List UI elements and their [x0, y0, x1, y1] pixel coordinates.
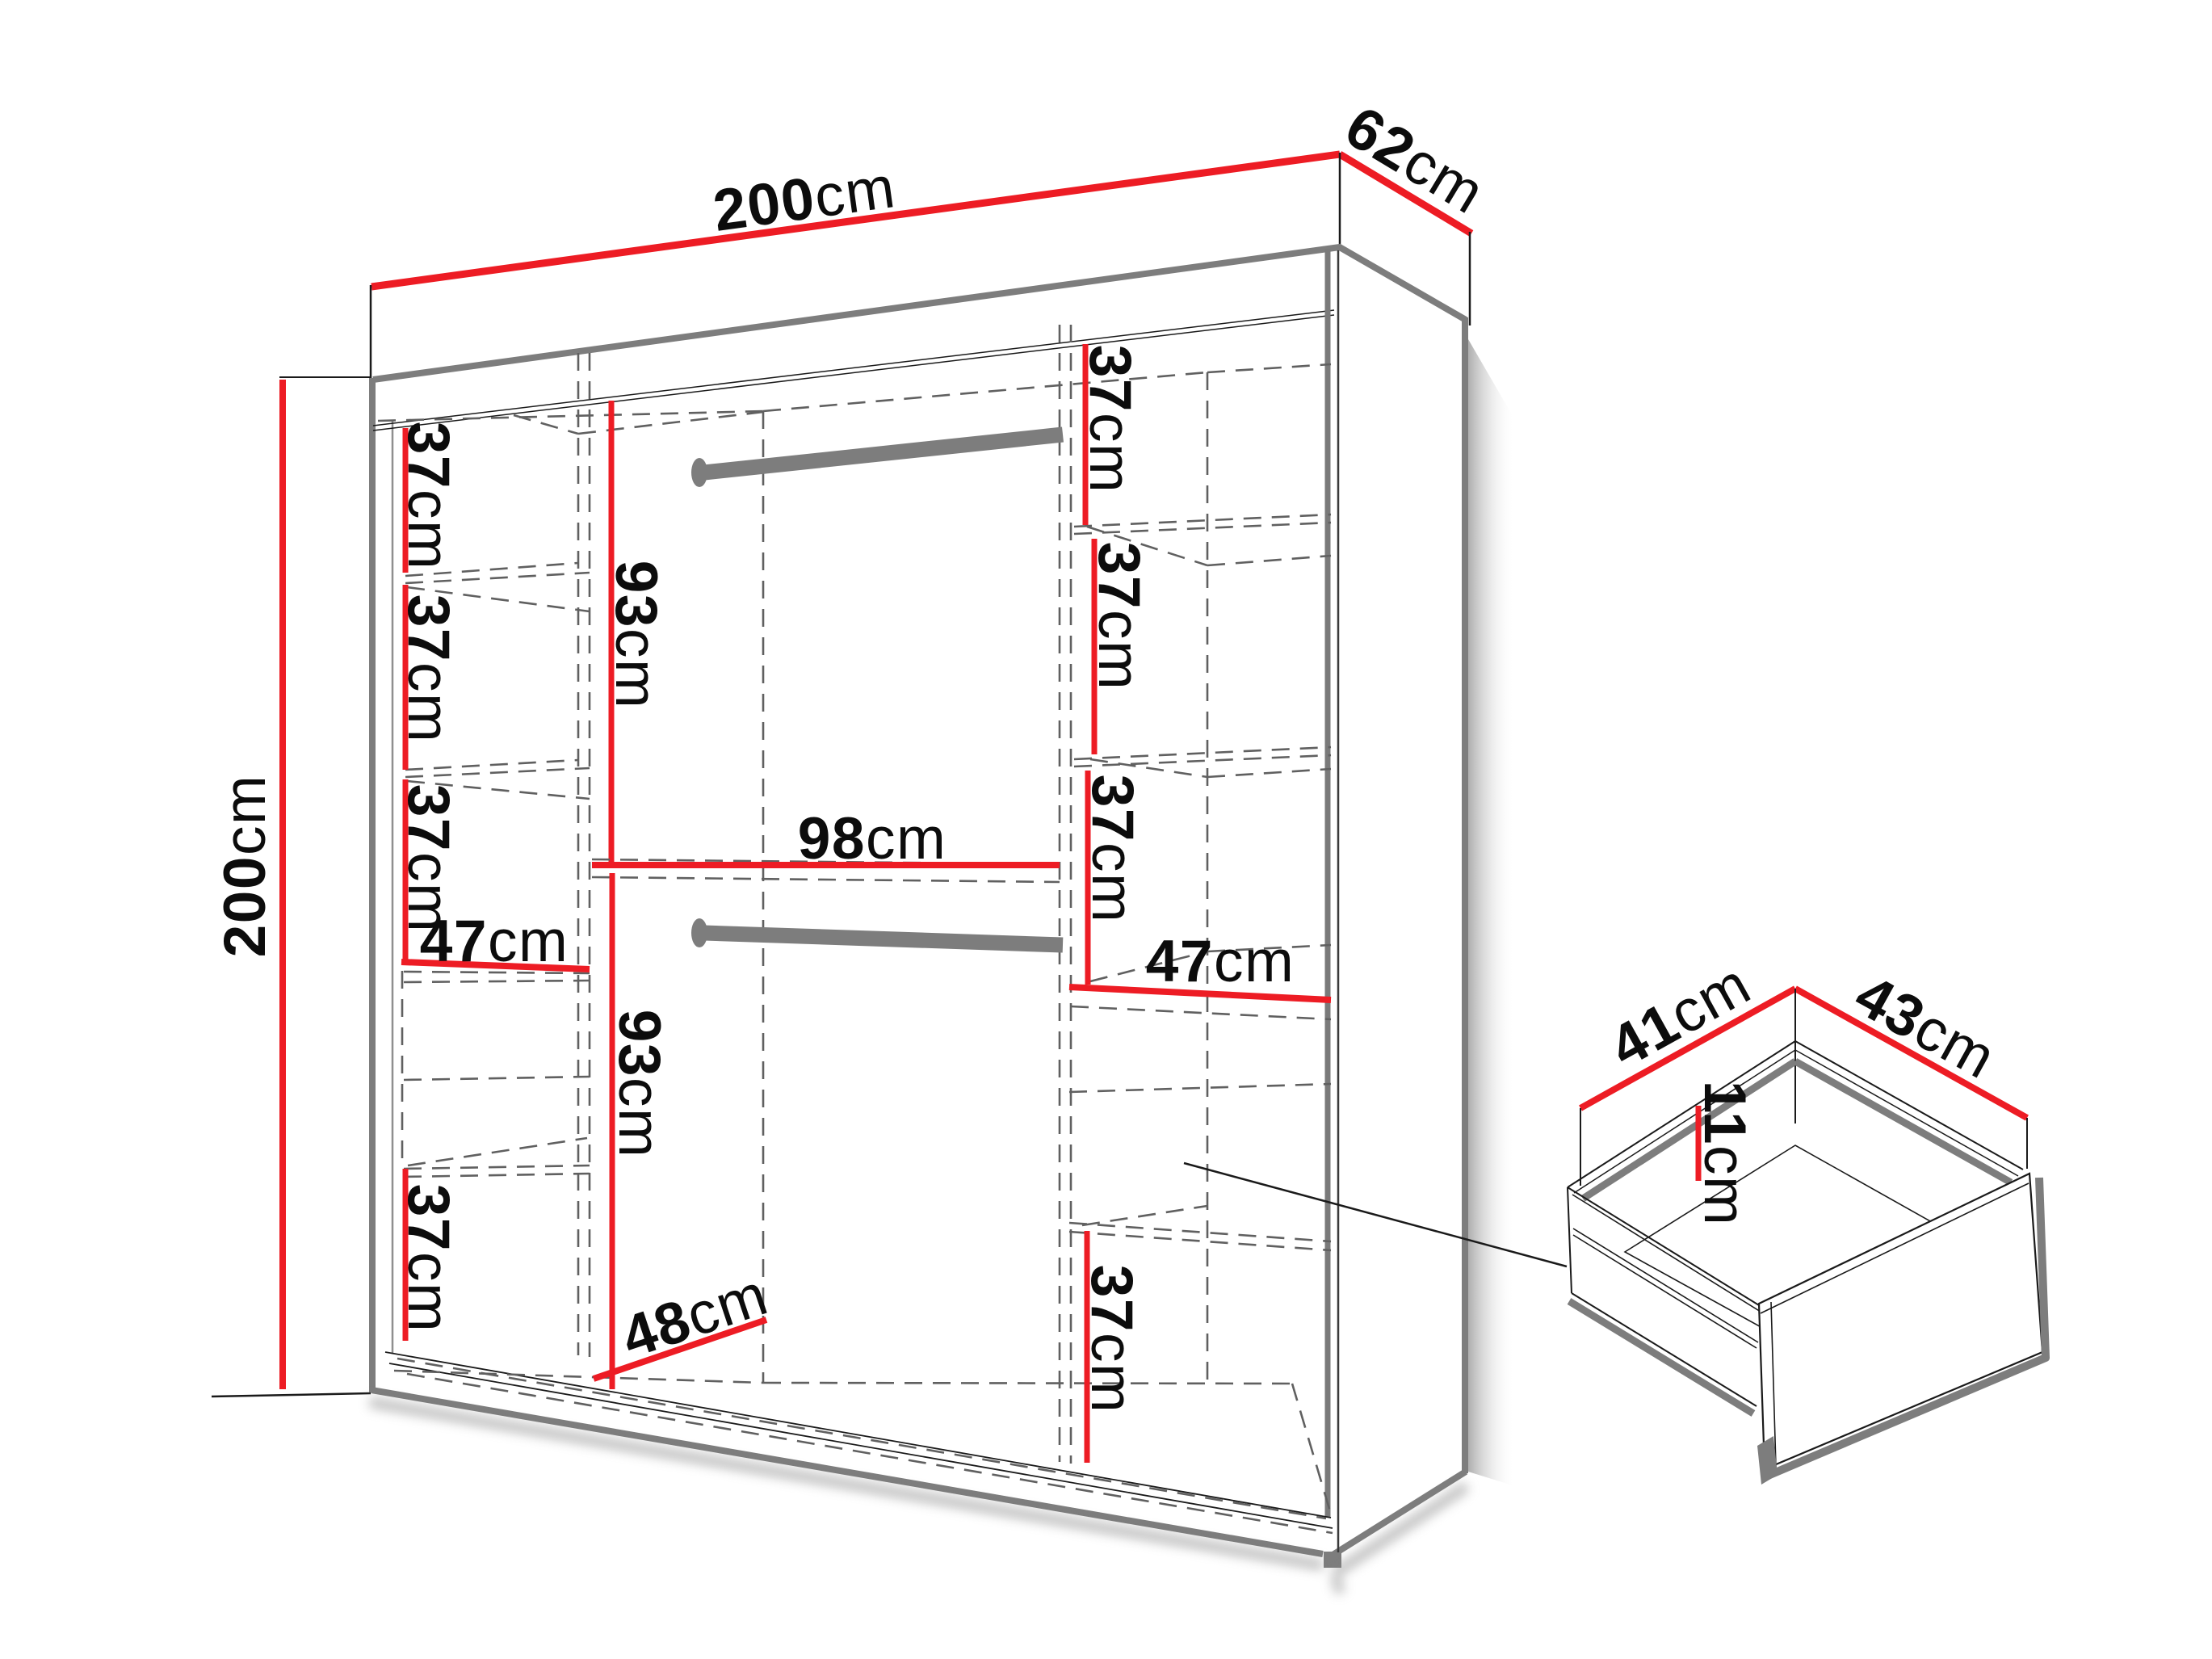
svg-text:37cm: 37cm: [396, 594, 461, 744]
svg-text:93cm: 93cm: [607, 1010, 672, 1159]
svg-text:200cm: 200cm: [212, 775, 278, 958]
svg-text:37cm: 37cm: [1086, 542, 1152, 691]
svg-text:11cm: 11cm: [1692, 1081, 1757, 1226]
svg-text:93cm: 93cm: [603, 561, 669, 710]
svg-text:37cm: 37cm: [1079, 1265, 1144, 1414]
svg-text:37cm: 37cm: [1080, 775, 1145, 924]
svg-text:37cm: 37cm: [1077, 345, 1143, 494]
svg-text:37cm: 37cm: [396, 422, 461, 571]
svg-text:47cm: 47cm: [1146, 929, 1295, 994]
svg-text:98cm: 98cm: [798, 806, 947, 871]
svg-text:37cm: 37cm: [396, 1184, 461, 1333]
svg-text:47cm: 47cm: [420, 909, 569, 974]
